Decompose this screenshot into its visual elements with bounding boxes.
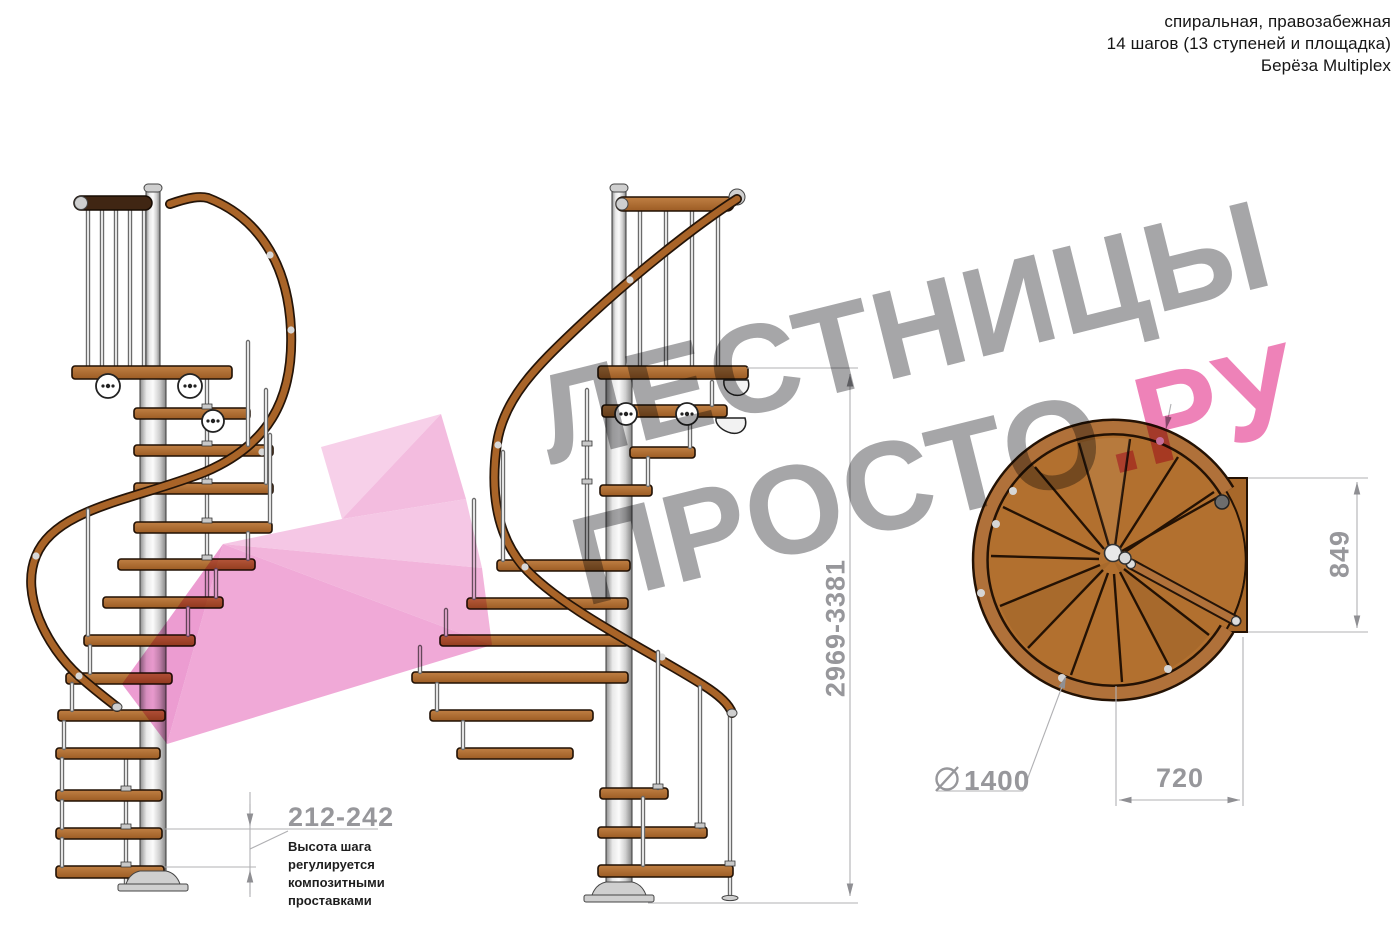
handrail-cap [75, 197, 88, 210]
title-block: спиральная, правозабежная 14 шагов (13 с… [1107, 11, 1391, 77]
center-pole-upper [146, 190, 160, 368]
handrail-end-cap [727, 709, 737, 717]
ring-end-cap [1215, 495, 1229, 509]
dimension-step-height: 212-242 [288, 802, 394, 833]
landing-platform [72, 366, 232, 379]
pole-base [592, 882, 646, 895]
blueprint-page: { "header": { "line1": "спиральная, прав… [0, 0, 1400, 944]
dimension-total-height: 2969-3381 [821, 559, 852, 697]
dimension-tread-width: 720 [1156, 763, 1204, 794]
title-line-type: спиральная, правозабежная [1107, 11, 1391, 33]
dimension-diameter: 1400 [964, 765, 1030, 797]
dimension-landing-depth: 849 [1325, 530, 1356, 578]
diameter-icon [936, 767, 958, 791]
title-line-material: Берёза Multiplex [1107, 55, 1391, 77]
pole-top-cap [144, 184, 162, 192]
handrail-end-cap [112, 703, 122, 711]
step-height-note: Высота шага регулируется композитными пр… [288, 838, 385, 910]
title-line-steps: 14 шагов (13 ступеней и площадка) [1107, 33, 1391, 55]
pole-base [126, 871, 180, 884]
